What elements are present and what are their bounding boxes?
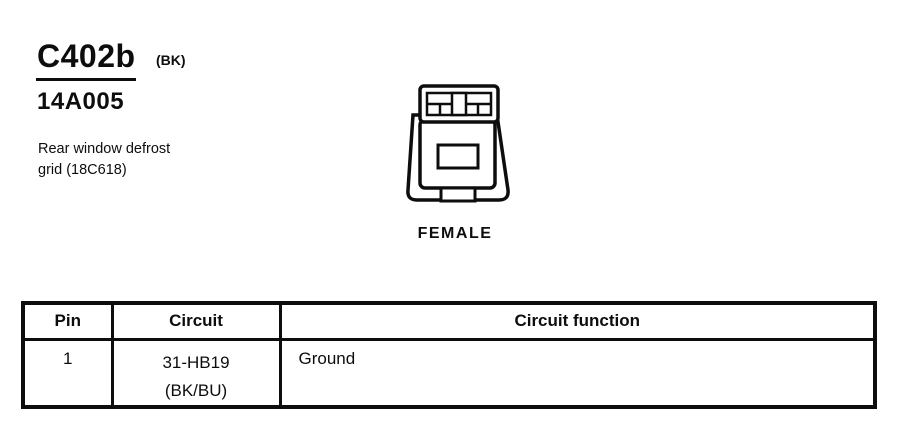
table-row: 1 31-HB19 (BK/BU) Ground	[23, 339, 875, 407]
connector-id: C402b	[37, 38, 136, 75]
col-header-circuit-function: Circuit function	[280, 303, 875, 339]
circuit-function-cell: Ground	[280, 339, 875, 407]
table-header-row: Pin Circuit Circuit function	[23, 303, 875, 339]
connector-terminal-slot	[438, 145, 478, 168]
latch-grid-center-slot	[452, 93, 466, 115]
description-line-2: grid (18C618)	[38, 160, 170, 181]
connector-color-code: (BK)	[156, 52, 186, 68]
circuit-wire-colors: (BK/BU)	[114, 377, 279, 405]
description-line-1: Rear window defrost	[38, 139, 170, 160]
connector-description: Rear window defrost grid (18C618)	[38, 139, 170, 181]
col-header-circuit: Circuit	[112, 303, 280, 339]
circuit-cell: 31-HB19 (BK/BU)	[112, 339, 280, 407]
pin-cell: 1	[23, 339, 112, 407]
connector-bottom-tab	[441, 188, 475, 201]
manual-page: C402b (BK) 14A005 Rear window defrost gr…	[0, 0, 898, 432]
connector-drawing	[390, 70, 520, 210]
pinout-table: Pin Circuit Circuit function 1 31-HB19 (…	[21, 301, 877, 409]
connector-id-underline	[36, 78, 136, 81]
circuit-number: 31-HB19	[114, 349, 279, 377]
col-header-pin: Pin	[23, 303, 112, 339]
part-number: 14A005	[37, 88, 124, 116]
connector-gender-label: FEMALE	[383, 225, 527, 243]
